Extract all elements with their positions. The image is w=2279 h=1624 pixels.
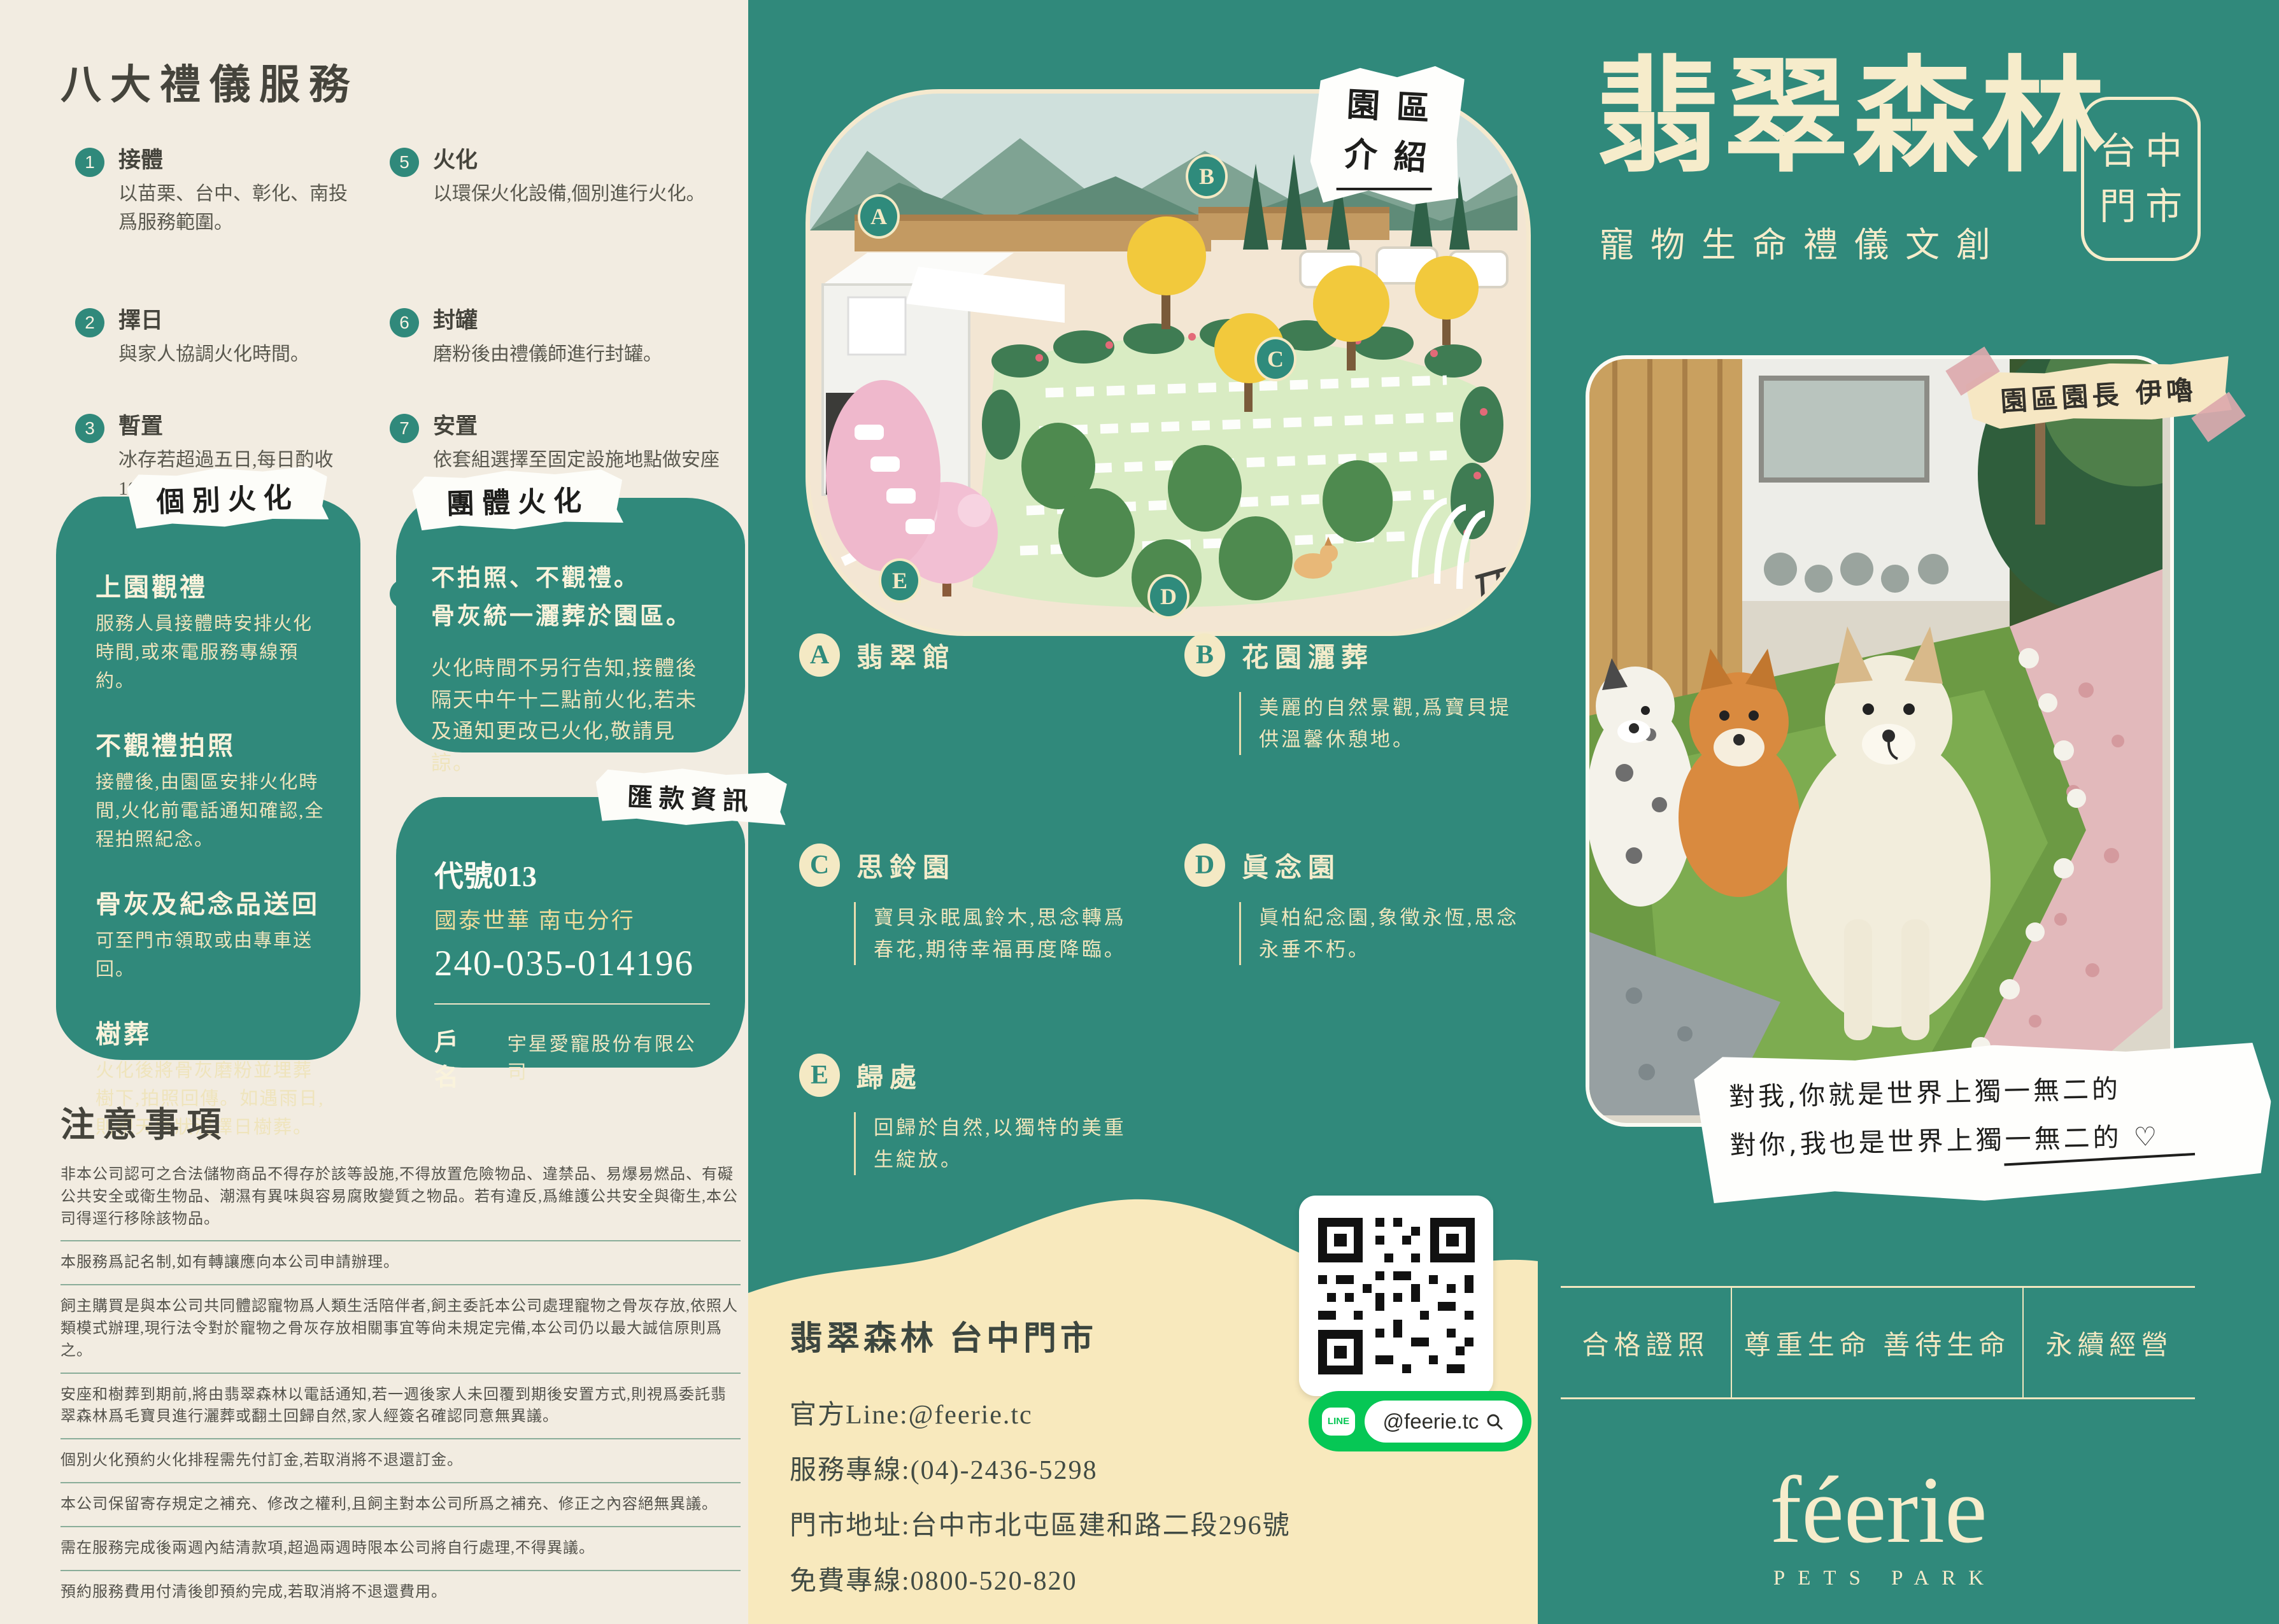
service-title: 封罐 xyxy=(433,307,662,335)
service-title: 接體 xyxy=(118,146,359,174)
area-name: 翡翠館 xyxy=(856,636,956,675)
services-title: 八大禮儀服務 xyxy=(60,52,359,111)
account-holder-name: 宇星愛寵股份有限公司 xyxy=(508,1028,710,1084)
contact-phone: 服務專線:(04)-2436-5298 xyxy=(790,1448,1098,1487)
map-intro-line1: 園區 xyxy=(1329,79,1447,134)
map-marker-e: E xyxy=(879,558,921,603)
line-official-badge: LINE @feerie.tc xyxy=(1309,1391,1531,1451)
store-badge-line2: 門市 xyxy=(2091,179,2191,234)
service-desc: 以環保火化設備,個別進行火化。 xyxy=(433,180,706,208)
note-item: 個別火化預約火化排程需先付訂金,若取消將不退還訂金。 xyxy=(60,1438,741,1482)
bank-account-number: 240-035-014196 xyxy=(434,943,710,984)
brand-subtitle: 寵物生命禮儀文創 xyxy=(1600,216,2007,267)
service-title: 擇日 xyxy=(118,307,309,335)
area-desc: 美麗的自然景觀,爲寶貝提供溫馨休憩地。 xyxy=(1239,692,1533,755)
individual-cremation-card: 上園觀禮 服務人員接體時安排火化時間,或來電服務專線預約。 不觀禮拍照 接體後,… xyxy=(56,497,360,1060)
brochure-page: 八大禮儀服務 1 接體 以苗栗、台中、彰化、南投爲服務範圍。 2 擇日 與家人協… xyxy=(0,0,2279,1624)
dogs-photo xyxy=(1586,355,2174,1127)
note-item: 飼主購買是與本公司共同體認寵物爲人類生活陪伴者,飼主委託本公司處理寵物之骨灰存放… xyxy=(60,1284,741,1372)
area-letter-badge: B xyxy=(1184,633,1225,677)
map-marker-d: D xyxy=(1147,574,1189,619)
note-item: 本服務爲記名制,如有轉讓應向本公司申請辦理。 xyxy=(60,1240,741,1284)
store-contact-title: 翡翠森林 台中門市 xyxy=(790,1311,1097,1359)
area-name: 思鈴園 xyxy=(856,846,956,885)
service-number-badge: 6 xyxy=(390,308,419,337)
quote-line-2: 對你,我也是世界上獨一無二的 ♡ xyxy=(1729,1115,2238,1166)
note-item: 非本公司認可之合法儲物商品不得存於該等設施,不得放置危險物品、違禁品、易爆易燃品… xyxy=(60,1154,741,1240)
note-item: 預約服務費用付清後卽預約完成,若取消將不退還費用。 xyxy=(60,1570,741,1614)
contact-line-line: 官方Line:@feerie.tc xyxy=(790,1393,1033,1432)
map-marker-a: A xyxy=(858,194,900,239)
card-item-title: 骨灰及紀念品送回 xyxy=(96,884,327,921)
quote-line-1: 對我,你就是世界上獨一無二的 xyxy=(1728,1067,2236,1118)
notes-title: 注意事項 xyxy=(60,1096,229,1147)
remittance-card: 代號013 國泰世華 南屯分行 240-035-014196 戶名 宇星愛寵股份… xyxy=(396,797,745,1068)
account-holder-label: 戶名 xyxy=(434,1022,491,1092)
dogs-photo-illustration xyxy=(1589,359,2162,1115)
area-desc: 寶貝永眠風鈴木,思念轉爲春花,期待幸福再度降臨。 xyxy=(854,902,1147,965)
map-intro-note: 園區 介紹 xyxy=(1308,60,1465,213)
underline-stroke xyxy=(1336,188,1431,190)
service-number-badge: 1 xyxy=(75,148,104,177)
card-body: 火化時間不另行告知,接體後隔天中午十二點前火化,若未及通知更改已火化,敬請見諒。 xyxy=(431,653,714,779)
card-item-title: 不觀禮拍照 xyxy=(96,725,327,762)
brand-logo-block: féerie PETS PARK xyxy=(1742,1458,2015,1590)
cert-item: 尊重生命 善待生命 xyxy=(1731,1288,2024,1397)
bank-code: 代號013 xyxy=(434,853,710,895)
store-location-badge: 台中 門市 xyxy=(2081,97,2201,261)
card-item-desc: 可至門市領取或由專車送回。 xyxy=(96,927,327,984)
service-item-6: 6 封罐 磨粉後由禮儀師進行封罐。 xyxy=(390,307,727,369)
cert-item: 合格證照 xyxy=(1561,1288,1731,1397)
note-item: 本公司保留寄存規定之補充、修改之權利,且飼主對本公司所爲之補充、修正之內容絕無異… xyxy=(60,1482,741,1526)
service-number-badge: 5 xyxy=(390,148,419,177)
service-title: 安置 xyxy=(433,413,727,441)
card-item-title: 樹葬 xyxy=(96,1013,327,1050)
service-number-badge: 7 xyxy=(390,414,419,443)
area-letter-badge: D xyxy=(1184,844,1225,887)
brand-logo-subtitle: PETS PARK xyxy=(1742,1567,2015,1590)
service-item-1: 1 接體 以苗栗、台中、彰化、南投爲服務範圍。 xyxy=(75,146,359,237)
area-name: 歸處 xyxy=(856,1056,923,1095)
line-icon-label: LINE xyxy=(1322,1408,1355,1436)
map-intro-line2: 介紹 xyxy=(1326,129,1445,184)
contact-tollfree: 免費專線:0800-520-820 xyxy=(790,1559,1077,1598)
service-number-badge: 3 xyxy=(75,414,104,443)
service-desc: 磨粉後由禮儀師進行封罐。 xyxy=(433,340,662,369)
area-item-d: D 眞念園 眞柏紀念園,象徵永恆,思念永垂不朽。 xyxy=(1184,844,1541,965)
note-item: 安座和樹葬到期前,將由翡翠森林以電話通知,若一週後家人未回覆到期後安置方式,則視… xyxy=(60,1373,741,1439)
card-item-desc: 服務人員接體時安排火化時間,或來電服務專線預約。 xyxy=(96,610,327,696)
qr-code xyxy=(1314,1214,1479,1378)
search-icon xyxy=(1485,1412,1504,1431)
store-badge-line1: 台中 xyxy=(2091,124,2191,179)
card-item-title: 上園觀禮 xyxy=(96,567,327,604)
cert-item: 永續經營 xyxy=(2024,1288,2195,1397)
area-letter-badge: C xyxy=(799,844,840,887)
area-name: 花園灑葬 xyxy=(1242,636,1374,675)
map-marker-c: C xyxy=(1254,337,1296,381)
notes-list: 非本公司認可之合法儲物商品不得存於該等設施,不得放置危險物品、違禁品、易爆易燃品… xyxy=(60,1154,741,1613)
card-item-desc: 接體後,由園區安排火化時間,火化前電話通知確認,全程拍照紀念。 xyxy=(96,768,327,854)
area-item-a: A 翡翠館 xyxy=(799,633,1156,677)
bank-name: 國泰世華 南屯分行 xyxy=(434,903,710,935)
service-desc: 與家人協調火化時間。 xyxy=(118,340,309,369)
note-item: 需在服務完成後兩週內結清款項,超過兩週時限本公司將自行處理,不得異議。 xyxy=(60,1526,741,1570)
certification-band: 合格證照 尊重生命 善待生命 永續經營 xyxy=(1561,1286,2195,1399)
line-id-text: @feerie.tc xyxy=(1383,1409,1479,1434)
card-line: 骨灰統一灑葬於園區。 xyxy=(431,597,714,631)
area-item-c: C 思鈴園 寶貝永眠風鈴木,思念轉爲春花,期待幸福再度降臨。 xyxy=(799,844,1156,965)
line-icon: LINE xyxy=(1317,1401,1360,1443)
service-number-badge: 2 xyxy=(75,308,104,337)
brand-title: 翡翠森林 xyxy=(1595,56,2110,181)
card-line: 不拍照、不觀禮。 xyxy=(431,558,714,593)
service-item-2: 2 擇日 與家人協調火化時間。 xyxy=(75,307,359,369)
area-letter-badge: A xyxy=(799,633,840,677)
contact-address: 門市地址:台中市北屯區建和路二段296號 xyxy=(790,1504,1291,1543)
divider xyxy=(434,1003,710,1005)
group-cremation-card: 不拍照、不觀禮。 骨灰統一灑葬於園區。 火化時間不另行告知,接體後隔天中午十二點… xyxy=(396,498,745,752)
area-item-b: B 花園灑葬 美麗的自然景觀,爲寶貝提供溫馨休憩地。 xyxy=(1184,633,1541,755)
service-title: 暫置 xyxy=(118,413,359,441)
area-item-e: E 歸處 回歸於自然,以獨特的美重生綻放。 xyxy=(799,1054,1156,1175)
area-desc: 眞柏紀念園,象徵永恆,思念永垂不朽。 xyxy=(1239,902,1533,965)
service-title: 火化 xyxy=(433,146,706,174)
area-name: 眞念園 xyxy=(1242,846,1341,885)
brand-logo: féerie xyxy=(1742,1458,2015,1563)
area-letter-badge: E xyxy=(799,1054,840,1097)
service-desc: 以苗栗、台中、彰化、南投爲服務範圍。 xyxy=(118,180,359,237)
map-marker-b: B xyxy=(1186,154,1228,199)
quote-note: 對我,你就是世界上獨一無二的 對你,我也是世界上獨一無二的 ♡ xyxy=(1694,1040,2273,1207)
service-item-5: 5 火化 以環保火化設備,個別進行火化。 xyxy=(390,146,727,208)
qr-code-card xyxy=(1299,1196,1493,1396)
fold-left-panel: 八大禮儀服務 1 接體 以苗栗、台中、彰化、南投爲服務範圍。 2 擇日 與家人協… xyxy=(0,0,748,1624)
